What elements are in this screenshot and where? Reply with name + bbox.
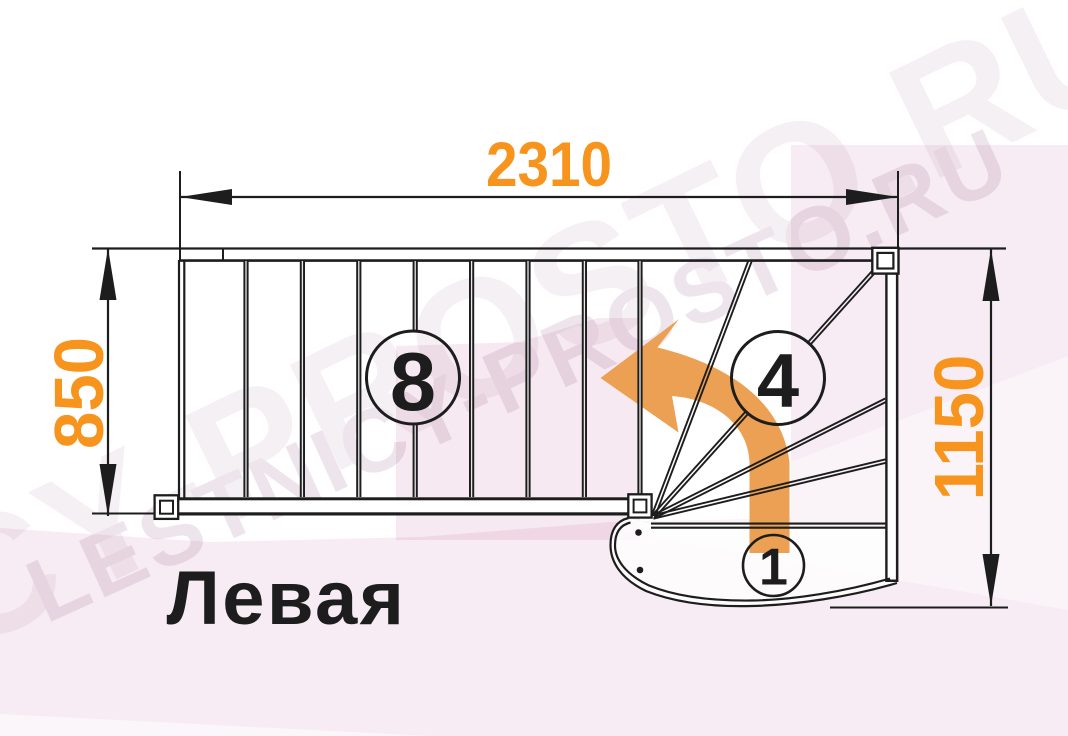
svg-text:2310: 2310 bbox=[486, 129, 612, 199]
svg-text:1150: 1150 bbox=[920, 355, 999, 501]
svg-text:1: 1 bbox=[759, 539, 788, 597]
svg-text:8: 8 bbox=[390, 335, 436, 428]
svg-text:4: 4 bbox=[757, 339, 799, 424]
svg-text:850: 850 bbox=[40, 337, 119, 449]
svg-text:Левая: Левая bbox=[167, 556, 407, 641]
